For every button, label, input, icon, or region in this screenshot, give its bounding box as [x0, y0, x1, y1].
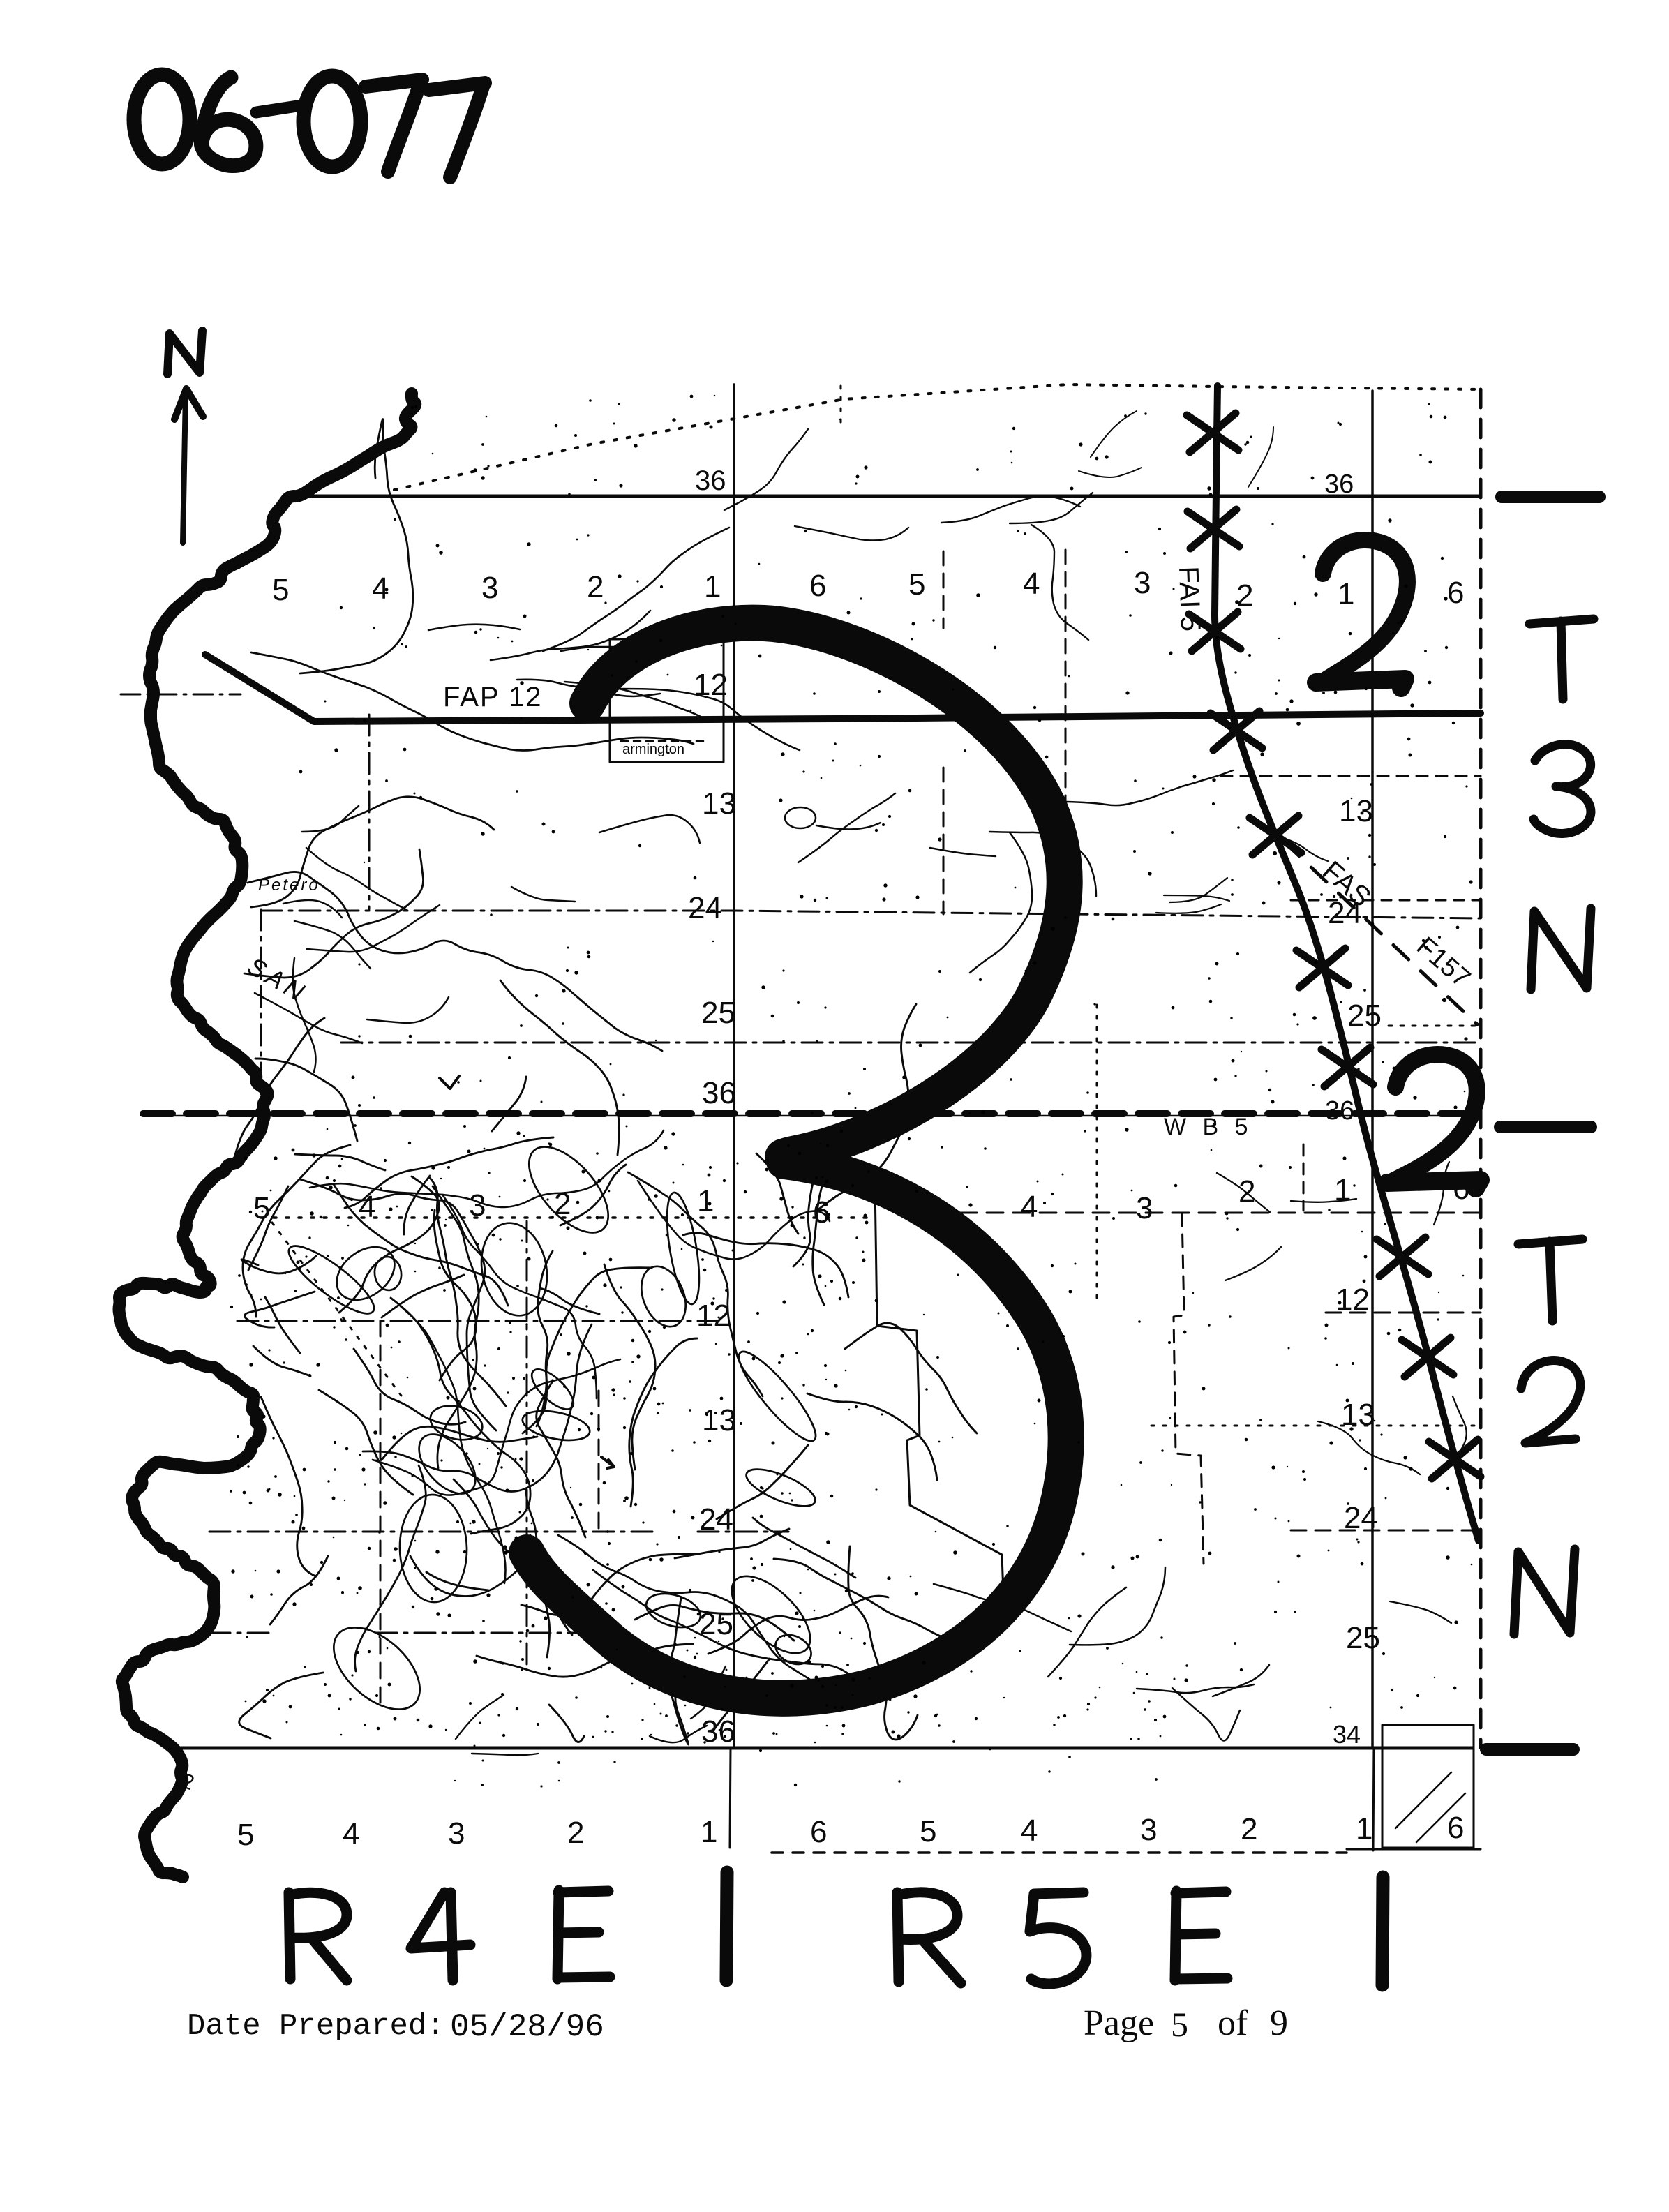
svg-text:4: 4	[1021, 1190, 1038, 1224]
svg-text:3: 3	[469, 1188, 486, 1223]
svg-text:W B 5: W B 5	[1164, 1114, 1253, 1140]
svg-text:6: 6	[810, 1815, 827, 1849]
svg-text:4: 4	[1023, 567, 1040, 601]
svg-text:2: 2	[587, 570, 604, 604]
svg-text:armington: armington	[622, 742, 684, 757]
svg-text:24: 24	[1344, 1501, 1378, 1535]
svg-text:of: of	[1218, 2003, 1248, 2043]
svg-text:13: 13	[702, 1403, 736, 1437]
svg-text:6: 6	[1453, 1172, 1469, 1206]
svg-text:36: 36	[702, 1076, 736, 1110]
svg-text:1: 1	[1356, 1811, 1372, 1846]
svg-text:6: 6	[1447, 1811, 1464, 1845]
svg-text:2: 2	[1236, 578, 1253, 613]
svg-text:25: 25	[699, 1607, 733, 1641]
svg-text:36: 36	[1325, 1096, 1354, 1126]
svg-text:5: 5	[1171, 2005, 1188, 2044]
svg-text:3: 3	[1140, 1813, 1157, 1847]
svg-text:13: 13	[1339, 794, 1373, 828]
svg-text:1: 1	[704, 569, 721, 604]
svg-text:6: 6	[809, 569, 826, 603]
svg-text:34: 34	[1333, 1720, 1361, 1749]
svg-text:24: 24	[688, 891, 722, 925]
svg-text:5: 5	[908, 567, 925, 601]
svg-text:5: 5	[253, 1191, 270, 1225]
svg-text:9: 9	[1270, 2003, 1288, 2043]
svg-text:24: 24	[699, 1502, 733, 1537]
svg-text:3: 3	[481, 571, 498, 605]
svg-text:1: 1	[1338, 577, 1354, 611]
svg-text:3: 3	[448, 1816, 465, 1851]
svg-text:4: 4	[359, 1190, 375, 1224]
svg-text:Date Prepared:: Date Prepared:	[187, 2009, 445, 2044]
svg-text:2: 2	[567, 1816, 584, 1850]
svg-text:25: 25	[701, 996, 735, 1030]
svg-text:05/28/96: 05/28/96	[450, 2009, 604, 2045]
svg-text:2: 2	[554, 1187, 571, 1221]
svg-text:5: 5	[272, 573, 289, 607]
svg-text:13: 13	[702, 786, 736, 821]
svg-text:36: 36	[695, 465, 726, 496]
svg-text:2: 2	[1241, 1812, 1257, 1846]
svg-text:1: 1	[701, 1815, 717, 1849]
svg-text:6: 6	[1447, 576, 1464, 610]
svg-text:36: 36	[1324, 470, 1354, 499]
svg-text:12: 12	[1335, 1283, 1370, 1317]
svg-text:25: 25	[1347, 999, 1382, 1033]
svg-text:FAI 5: FAI 5	[1173, 566, 1206, 632]
svg-text:1: 1	[1334, 1173, 1351, 1207]
svg-text:Petero: Petero	[258, 876, 320, 895]
svg-text:6: 6	[813, 1195, 830, 1230]
svg-text:3: 3	[1134, 566, 1151, 600]
svg-text:4: 4	[343, 1817, 359, 1851]
svg-text:3: 3	[1136, 1191, 1153, 1225]
svg-text:2: 2	[1238, 1174, 1255, 1209]
svg-text:12: 12	[694, 668, 728, 702]
svg-text:12: 12	[696, 1299, 731, 1333]
svg-text:Page: Page	[1084, 2003, 1154, 2043]
svg-text:5: 5	[237, 1818, 254, 1852]
svg-text:FAP 12: FAP 12	[443, 682, 542, 712]
svg-text:4: 4	[372, 571, 389, 606]
svg-text:5: 5	[920, 1814, 936, 1848]
svg-text:25: 25	[1346, 1621, 1380, 1655]
svg-text:13: 13	[1341, 1398, 1375, 1432]
svg-text:1: 1	[697, 1184, 714, 1218]
svg-text:36: 36	[701, 1714, 735, 1749]
svg-text:4: 4	[1021, 1814, 1038, 1848]
